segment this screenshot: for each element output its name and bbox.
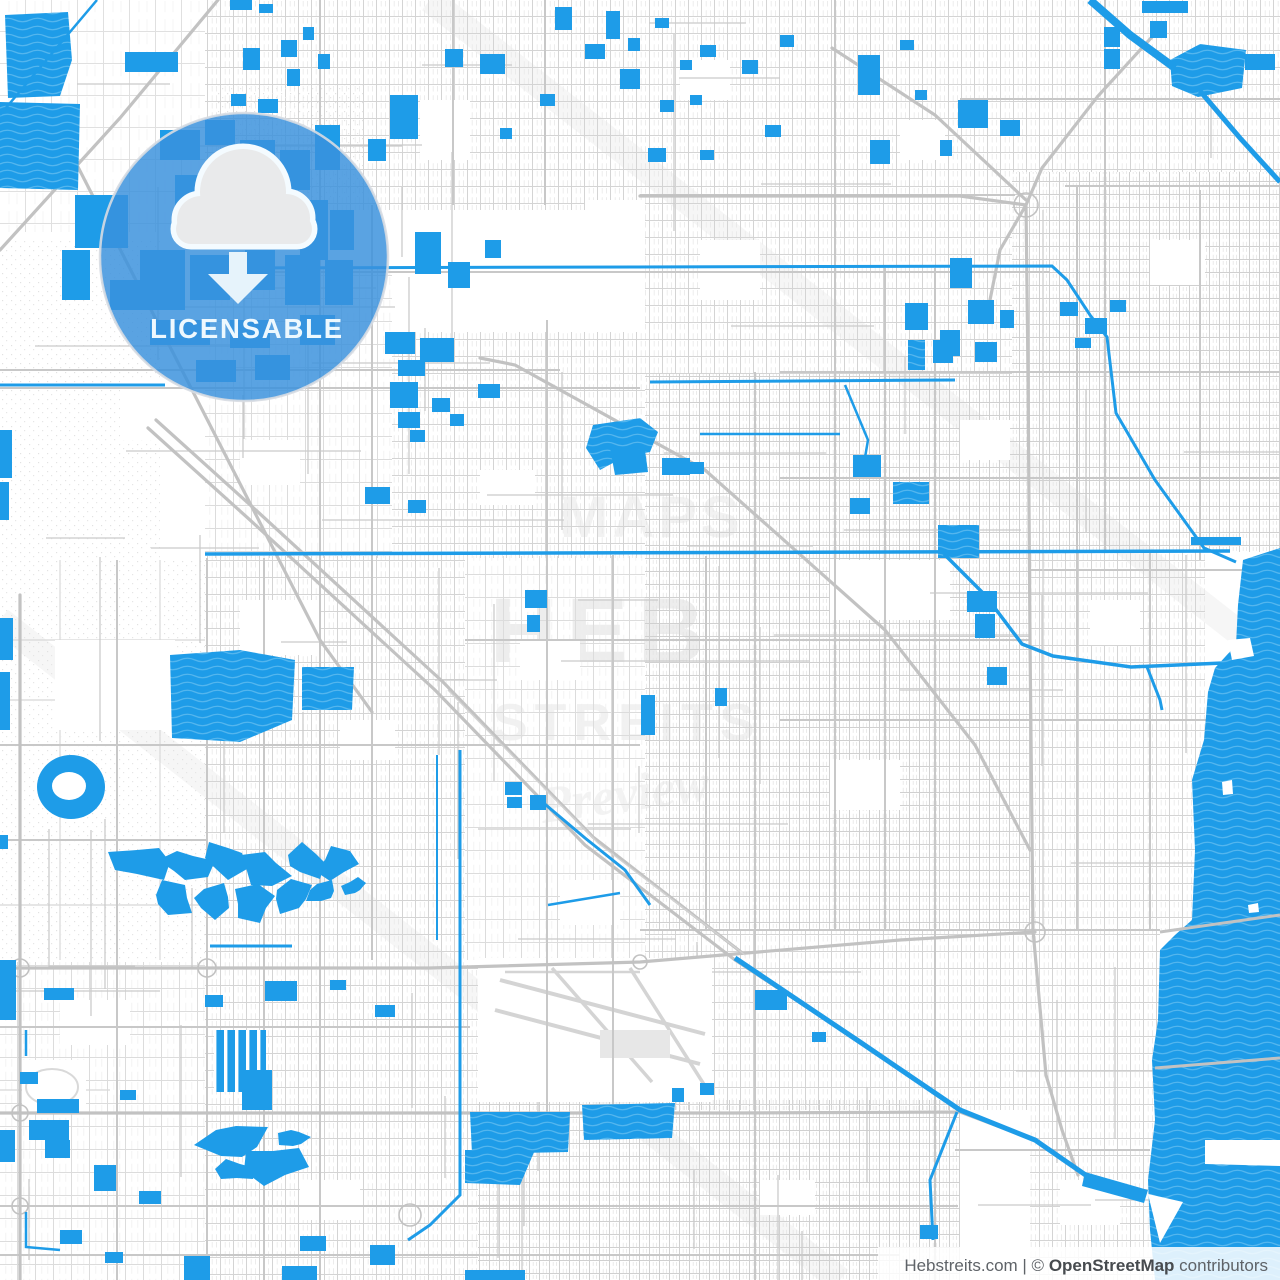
svg-text:Hebstreits.com | © OpenStreetM: Hebstreits.com | © OpenStreetMap contrib… bbox=[904, 1256, 1268, 1275]
svg-text:LICENSABLE: LICENSABLE bbox=[150, 313, 344, 344]
